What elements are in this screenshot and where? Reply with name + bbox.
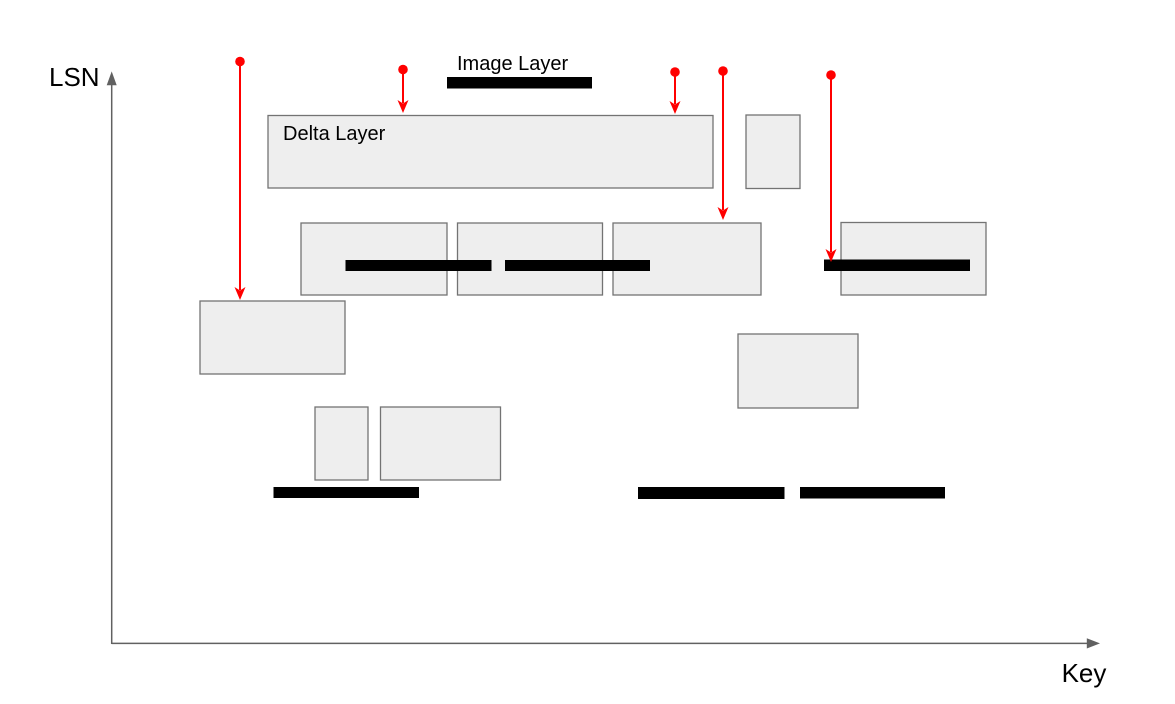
svg-text:Image Layer: Image Layer xyxy=(457,53,569,75)
svg-text:LSN: LSN xyxy=(49,62,100,92)
svg-text:Key: Key xyxy=(1062,658,1107,688)
svg-text:Delta Layer: Delta Layer xyxy=(283,123,386,145)
